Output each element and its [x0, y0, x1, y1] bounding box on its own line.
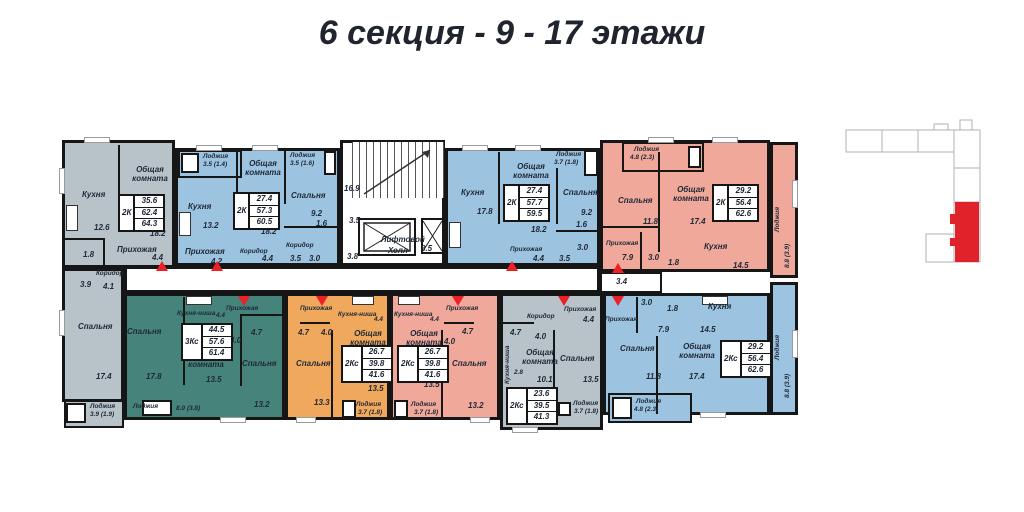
- full-area: 59.5: [520, 209, 548, 220]
- area-table-a4: 2К 29.2 56.4 62.6: [712, 184, 759, 222]
- room-label: Прихожая: [185, 248, 225, 257]
- room-label: Кухня: [461, 189, 484, 198]
- entrance-marker-a8: [558, 296, 570, 306]
- apartment-type: 2К: [505, 186, 520, 220]
- area-value: 11.8: [643, 217, 658, 226]
- area-table-a1: 2К 35.6 62.4 64.3: [118, 194, 165, 232]
- area-value: 13.5: [368, 384, 384, 393]
- room-label: Общая комната: [519, 349, 561, 367]
- room-label: Общая комната: [240, 160, 286, 178]
- area-value: 17.4: [690, 217, 706, 226]
- room-label: Холл: [388, 247, 408, 256]
- apartment-type: 2К: [120, 196, 135, 230]
- loggia-window: [688, 146, 701, 168]
- area-value: 3.9: [80, 280, 91, 289]
- window: [296, 417, 316, 423]
- window: [59, 310, 65, 336]
- full-area: 60.5: [250, 217, 278, 228]
- room-label: Кухня-ниша: [338, 311, 376, 318]
- area-value: 3.5: [290, 254, 301, 263]
- loggia-window: [394, 400, 408, 418]
- loggia-window: [612, 397, 632, 419]
- area-value: 13.5: [206, 375, 222, 384]
- total-area: 39.8: [363, 359, 391, 371]
- area-value: 3.8: [347, 252, 358, 261]
- total-area: 57.7: [520, 198, 548, 210]
- room-label: Прихожая: [510, 246, 542, 253]
- area-value: 4.8 (2.3): [634, 406, 658, 413]
- window: [792, 180, 798, 208]
- total-area: 62.4: [135, 208, 163, 220]
- area-value: 4.7: [251, 328, 262, 337]
- room-label: Прихожая: [606, 240, 638, 247]
- loggia-window: [584, 150, 598, 176]
- room-label: Кухня: [82, 191, 105, 200]
- area-table-a3: 2К 27.4 57.7 59.5: [503, 184, 550, 222]
- room-label: Кухня: [704, 243, 727, 252]
- total-area: 56.4: [729, 198, 757, 210]
- area-value: 4.1: [103, 282, 114, 291]
- area-value: 3.5 (1.4): [203, 161, 227, 168]
- room-label: Общая комната: [508, 163, 554, 181]
- room-label: Спальня: [560, 355, 594, 364]
- area-value: 13.2: [254, 400, 270, 409]
- room-label: Лоджия: [203, 153, 228, 160]
- area-value: 17.4: [689, 372, 705, 381]
- key-plan-current-section: [955, 202, 979, 262]
- area-value: 9.2: [581, 208, 592, 217]
- room-label: Лоджия: [636, 398, 661, 405]
- loggia-window: [558, 402, 571, 416]
- area-value: 8.8 (3.9): [784, 374, 791, 398]
- entrance-marker-a9: [612, 296, 624, 306]
- total-area: 57.3: [250, 206, 278, 218]
- apartment-type: 2Кс: [399, 347, 419, 381]
- corridor-right-block: [600, 272, 662, 293]
- wall: [600, 226, 660, 228]
- area-value: 3.7 (1.8): [414, 409, 438, 416]
- area-value: 4.0: [321, 328, 332, 337]
- area-value: 3.7 (1.8): [574, 408, 598, 415]
- room-label: Лоджия: [411, 401, 436, 408]
- area-value: 7.9: [622, 253, 633, 262]
- full-area: 41.3: [528, 412, 556, 423]
- window: [792, 330, 798, 358]
- entrance-marker-a1: [156, 261, 168, 271]
- window: [252, 145, 278, 151]
- room-label: Общая комната: [674, 343, 720, 361]
- room-label: Лоджия: [573, 400, 598, 407]
- room-label: Кухня: [708, 303, 731, 312]
- room-label: Спальня: [620, 345, 654, 354]
- room-label: Прихожая: [564, 306, 596, 313]
- loggia-window: [181, 153, 199, 173]
- area-value: 8.0 (3.8): [176, 405, 200, 412]
- area-value: 3.4: [616, 277, 627, 286]
- window: [470, 417, 490, 423]
- entrance-marker-a3: [506, 261, 518, 271]
- area-value: 4.4: [430, 316, 439, 323]
- wall: [500, 322, 534, 324]
- living-area: 29.2: [742, 342, 770, 354]
- window: [220, 417, 246, 423]
- room-label: Спальня: [242, 360, 276, 369]
- wall: [556, 230, 600, 232]
- wall: [65, 238, 105, 240]
- entrance-marker-a6: [316, 296, 328, 306]
- area-value: 3.5: [349, 216, 360, 225]
- apartment-type: 2Кс: [722, 342, 742, 376]
- total-area: 39.8: [419, 359, 447, 371]
- area-value: 17.8: [146, 372, 162, 381]
- room-label: Спальня: [78, 323, 112, 332]
- wall: [636, 297, 638, 333]
- wall: [640, 232, 642, 270]
- area-value: 4.4: [533, 254, 544, 263]
- wall: [103, 238, 105, 266]
- area-value: 14.5: [733, 261, 749, 270]
- room-label: Кухня: [188, 203, 211, 212]
- total-area: 39.5: [528, 401, 556, 413]
- apartment-a1-bedroom-block: [62, 268, 124, 402]
- area-value: 17.4: [96, 372, 112, 381]
- room-label: Кухня-ниша: [394, 311, 432, 318]
- living-area: 26.7: [363, 347, 391, 359]
- area-value: 11.8: [646, 372, 661, 381]
- area-value: 4.4: [262, 254, 273, 263]
- living-area: 23.6: [528, 389, 556, 401]
- window: [462, 145, 488, 151]
- room-label: Спальня: [127, 328, 161, 337]
- area-value: 4.7: [510, 328, 521, 337]
- area-value: 4.7: [298, 328, 309, 337]
- room-label: Лоджия: [90, 403, 115, 410]
- area-value: 3.0: [577, 243, 588, 252]
- area-value: 8.5: [421, 244, 432, 253]
- kitchen-appliance-icon: [449, 222, 461, 248]
- wall: [240, 316, 242, 386]
- entrance-marker-a7: [452, 296, 464, 306]
- area-table-a9: 2Кс 29.2 56.4 62.6: [720, 340, 772, 378]
- wall: [240, 314, 284, 316]
- area-table-a6: 2Кс 26.7 39.8 41.6: [341, 345, 393, 383]
- entrance-marker-a4: [612, 263, 624, 273]
- area-value: 14.5: [700, 325, 716, 334]
- living-area: 35.6: [135, 196, 163, 208]
- area-value: 17.8: [477, 207, 493, 216]
- living-area: 29.2: [729, 186, 757, 198]
- room-label: Лоджия: [556, 151, 581, 158]
- wall: [556, 168, 558, 224]
- room-label: Лоджия: [356, 401, 381, 408]
- area-value: 3.0: [309, 254, 320, 263]
- wall: [444, 322, 474, 324]
- area-value: 2.8: [514, 369, 523, 376]
- corridor-block: [124, 266, 600, 293]
- staircase-arrow-icon: [352, 142, 444, 202]
- area-table-a7: 2Кс 26.7 39.8 41.6: [397, 345, 449, 383]
- window: [700, 412, 726, 418]
- window: [196, 145, 222, 151]
- area-table-a5: 3Кс 44.5 57.6 61.4: [181, 323, 233, 361]
- living-area: 26.7: [419, 347, 447, 359]
- room-label: Коридор: [96, 270, 124, 277]
- area-value: 3.9 (1.9): [90, 411, 114, 418]
- room-label: Лифтовой: [381, 236, 425, 245]
- area-value: 13.2: [468, 401, 484, 410]
- wall: [498, 152, 500, 224]
- area-value: 4.7: [462, 327, 473, 336]
- room-label: Спальня: [618, 197, 652, 206]
- full-area: 64.3: [135, 219, 163, 230]
- room-label: Прихожая: [226, 305, 258, 312]
- area-table-a2: 2К 27.4 57.3 60.5: [233, 192, 280, 230]
- full-area: 62.6: [729, 209, 757, 220]
- wall: [658, 152, 660, 252]
- window: [59, 168, 65, 194]
- total-area: 56.4: [742, 354, 770, 366]
- window: [712, 137, 738, 143]
- wall: [300, 322, 330, 324]
- wall: [331, 330, 333, 418]
- living-area: 27.4: [250, 194, 278, 206]
- window: [512, 427, 538, 433]
- room-label: Общая комната: [668, 186, 714, 204]
- kitchen-appliance-icon: [186, 296, 212, 305]
- area-value: 4.8 (2.3): [630, 154, 654, 161]
- area-value: 1.8: [668, 258, 679, 267]
- room-label: Прихожая: [117, 246, 157, 255]
- apartment-type: 2К: [714, 186, 729, 220]
- living-area: 27.4: [520, 186, 548, 198]
- area-value: 4.4: [374, 316, 383, 323]
- room-label: Лоджия: [290, 152, 315, 159]
- entrance-marker-a5: [238, 296, 250, 306]
- window: [84, 137, 110, 143]
- entrance-marker-a2: [211, 261, 223, 271]
- apartment-type: 2Кс: [343, 347, 363, 381]
- kitchen-appliance-icon: [179, 212, 191, 236]
- room-label: Прихожая: [605, 316, 637, 323]
- area-value: 3.7 (1.8): [554, 159, 578, 166]
- area-value: 3.7 (1.8): [358, 409, 382, 416]
- room-label: Кухня-ниша: [504, 346, 511, 384]
- area-value: 7.9: [658, 325, 669, 334]
- area-value: 13.5: [583, 375, 599, 384]
- area-value: 1.8: [667, 304, 678, 313]
- room-label: Спальня: [452, 360, 486, 369]
- room-label: Спальня: [291, 192, 325, 201]
- room-label: Лоджия: [774, 207, 781, 232]
- full-area: 61.4: [203, 348, 231, 359]
- page-title: 6 секция - 9 - 17 этажи: [0, 14, 1024, 53]
- room-label: Спальня: [296, 360, 330, 369]
- full-area: 41.6: [363, 370, 391, 381]
- area-value: 3.5: [559, 254, 570, 263]
- area-value: 8.8 (3.9): [784, 244, 791, 268]
- room-label: Лоджия: [774, 335, 781, 360]
- area-value: 10.1: [537, 375, 553, 384]
- apartment-type: 2Кс: [508, 389, 528, 423]
- area-value: 18.2: [531, 225, 547, 234]
- area-value: 12.6: [94, 223, 110, 232]
- area-value: 16.9: [344, 184, 360, 193]
- area-value: 9.2: [311, 209, 322, 218]
- window: [515, 145, 541, 151]
- area-value: 13.2: [203, 221, 219, 230]
- room-label: Прихожая: [300, 305, 332, 312]
- area-table-a8: 2Кс 23.6 39.5 41.3: [506, 387, 558, 425]
- window: [648, 137, 674, 143]
- area-value: 1.6: [576, 220, 587, 229]
- area-value: 3.0: [648, 253, 659, 262]
- area-value: 3.5 (1.6): [290, 160, 314, 167]
- apartment-type: 3Кс: [183, 325, 203, 359]
- room-label: Коридор: [527, 313, 555, 320]
- area-value: 13.3: [314, 398, 330, 407]
- room-label: Коридор: [286, 242, 314, 249]
- loggia-window: [66, 403, 86, 423]
- room-label: Лоджия: [133, 403, 158, 410]
- area-value: 4.0: [535, 332, 546, 341]
- area-value: 1.6: [316, 219, 327, 228]
- full-area: 41.6: [419, 370, 447, 381]
- area-value: 3.0: [641, 298, 652, 307]
- room-label: Прихожая: [446, 305, 478, 312]
- area-value: 1.8: [83, 250, 94, 259]
- loggia-window: [342, 400, 356, 418]
- full-area: 62.6: [742, 365, 770, 376]
- area-value: 4.4: [583, 315, 594, 324]
- apartment-type: 2К: [235, 194, 250, 228]
- total-area: 57.6: [203, 337, 231, 349]
- room-label: Лоджия: [634, 146, 659, 153]
- room-label: Спальня: [563, 189, 597, 198]
- room-label: Кухня-ниша: [177, 310, 215, 317]
- room-label: Общая комната: [127, 166, 173, 184]
- area-value: 4.4: [216, 312, 225, 319]
- wall: [284, 226, 338, 228]
- kitchen-appliance-icon: [66, 205, 78, 231]
- key-plan: [842, 118, 1020, 273]
- loggia-window: [324, 151, 336, 175]
- kitchen-appliance-icon: [352, 296, 374, 305]
- kitchen-appliance-icon: [398, 296, 420, 305]
- living-area: 44.5: [203, 325, 231, 337]
